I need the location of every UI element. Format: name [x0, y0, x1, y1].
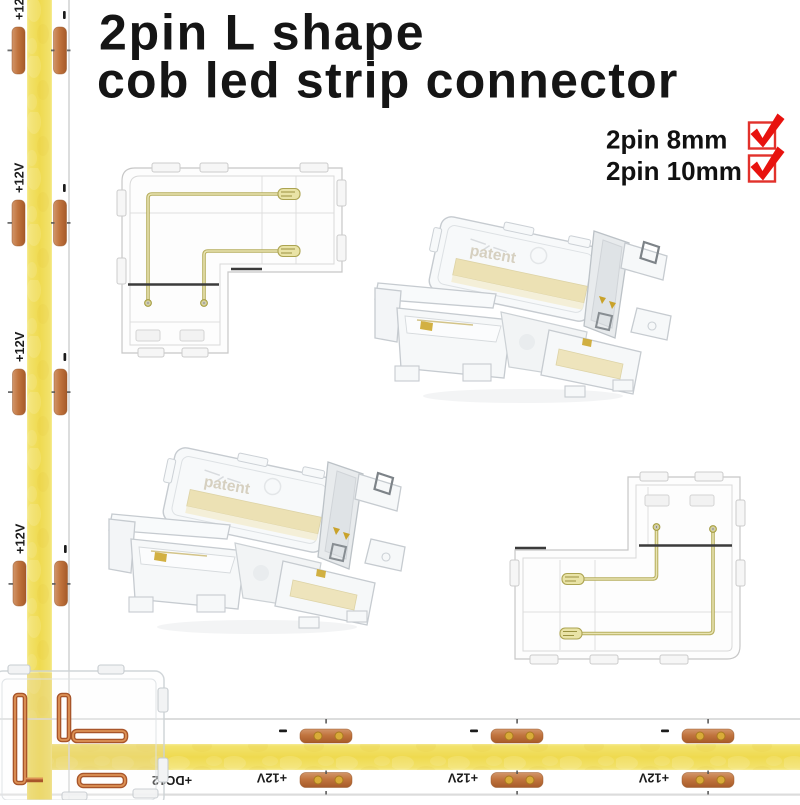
svg-text:+12V: +12V	[447, 771, 478, 786]
svg-text:+12V: +12V	[638, 771, 669, 786]
svg-text:+12V: +12V	[12, 0, 27, 20]
svg-text:2pin 10mm: 2pin 10mm	[606, 156, 742, 186]
svg-text:2pin 8mm: 2pin 8mm	[606, 125, 727, 155]
svg-text:cob led strip connector: cob led strip connector	[97, 53, 679, 109]
svg-text:+12V: +12V	[12, 162, 27, 193]
svg-text:+12V: +12V	[12, 331, 27, 362]
svg-text:+12V: +12V	[13, 523, 28, 554]
svg-text:+12V: +12V	[256, 771, 287, 786]
